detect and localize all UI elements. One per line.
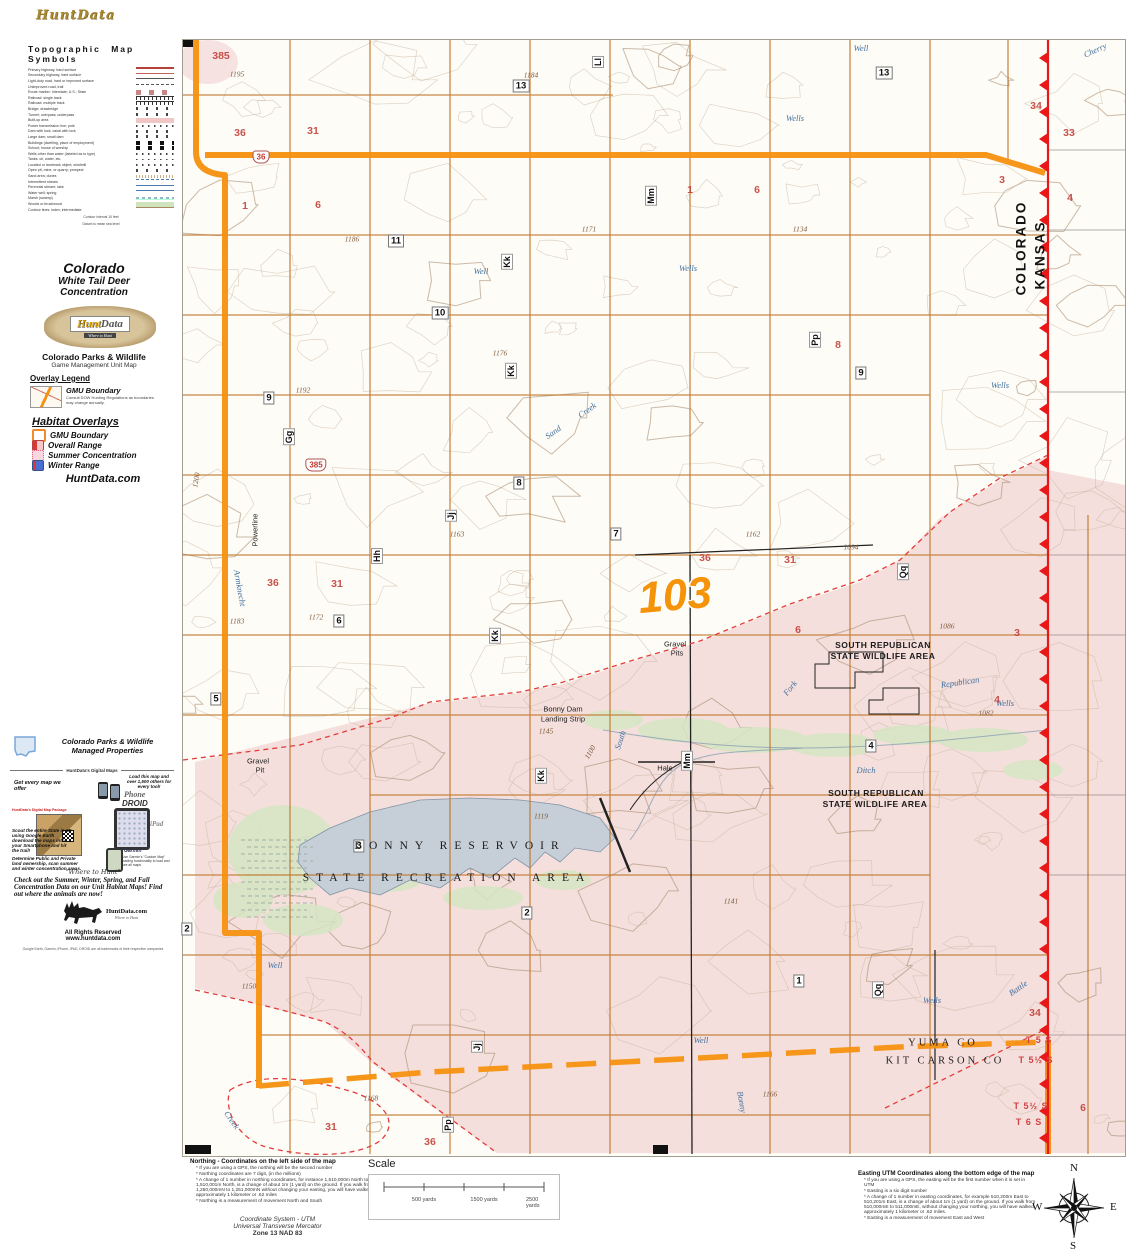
scale-bar: 500 yards 1500 yards 2500 yards	[368, 1174, 560, 1220]
topo-legend-rows: Primary highway, hard surfaceSecondary h…	[28, 67, 174, 212]
scout-pitch: Scout the entire State in 3D using Googl…	[12, 828, 72, 853]
water-label: Armknecht	[232, 569, 248, 607]
wildlife-area-label: STATE WILDLIFE AREA	[831, 651, 936, 661]
ipad-icon	[114, 808, 150, 850]
scale-tick-500: 500 yards	[412, 1197, 436, 1203]
water-label: Creek	[576, 400, 598, 420]
northing-notes: Northing - Coordinates on the left side …	[190, 1158, 382, 1205]
water-label: Fork	[781, 678, 799, 697]
elevation-label: 1171	[582, 225, 596, 234]
topo-legend-symbol	[136, 73, 174, 78]
map-title-block: Colorado White Tail Deer Concentration	[18, 260, 170, 298]
scale-title: Scale	[368, 1158, 560, 1170]
route-shield: 385	[305, 459, 326, 472]
huntdata-script-logo: HuntData	[36, 8, 115, 23]
mile-marker: 13	[513, 80, 530, 93]
section-number: 34	[1030, 100, 1042, 112]
topo-legend-label: Buildings (dwelling, place of employment…	[28, 141, 128, 145]
topo-legend-label: Railroad: single track	[28, 96, 128, 100]
digital-maps-divider: HuntData's Digital Maps	[10, 768, 174, 773]
compass-s: S	[1070, 1240, 1076, 1252]
note-bullet: * A change of 1 number in northing coord…	[196, 1178, 382, 1198]
habitat-item-label: Overall Range	[48, 441, 102, 450]
mile-marker: 8	[513, 477, 524, 490]
habitat-item-label: GMU Boundary	[50, 431, 108, 440]
topo-legend-symbol	[136, 146, 174, 150]
township-label: T 5½ S	[1018, 1055, 1053, 1065]
topo-legend-title: Topographic Map Symbols	[28, 44, 174, 64]
topo-legend-label: Dam with lock; canal with lock	[28, 129, 128, 133]
overlay-legend-item: GMU Boundary Consult DOW Hunting Regulat…	[30, 386, 172, 408]
water-label: Ditch	[857, 765, 876, 775]
county-label: YUMA CO	[908, 1038, 978, 1049]
habitat-item-label: Winter Range	[48, 461, 100, 470]
note-bullet: * Northing coordinates are 7 digit, (in …	[196, 1172, 382, 1177]
topo-legend-row: Intermittent stream	[28, 179, 174, 185]
topo-legend-row: Primary highway, hard surface	[28, 67, 174, 73]
topo-legend-symbol	[136, 113, 174, 116]
water-label: Wells	[786, 113, 804, 123]
winter-legend-icon	[32, 460, 44, 471]
topo-legend-symbol	[136, 190, 174, 195]
place-label: Pit	[256, 766, 265, 775]
topo-legend-row: Route marker: Interstate; U.S.; State	[28, 89, 174, 95]
northing-title: Northing - Coordinates on the left side …	[190, 1158, 382, 1165]
habitat-overlays-title: Habitat Overlays	[32, 416, 174, 428]
mile-marker: 9	[263, 392, 274, 405]
title-type: Concentration	[18, 287, 170, 298]
topo-legend-symbol	[136, 107, 174, 110]
habitat-item: Winter Range	[32, 460, 174, 470]
title-state: Colorado	[18, 260, 170, 276]
topo-legend-symbol	[136, 125, 174, 127]
northing-bullets: * If you are using a GPS, the northing w…	[196, 1166, 382, 1204]
note-bullet: * Easting is a six digit number	[864, 1189, 1036, 1194]
road-letter-label: Kk	[505, 363, 517, 379]
overall-legend-icon	[32, 440, 44, 451]
topo-legend-symbol	[136, 175, 174, 178]
topo-legend-symbol	[136, 130, 174, 133]
promo-paragraph: Check out the Summer, Winter, Spring, an…	[14, 877, 172, 898]
water-label: Wells	[679, 263, 697, 273]
huntdata-site-label: HuntData.com	[32, 473, 174, 485]
road-letter-label: Ll	[592, 56, 604, 68]
agency-map-type: Game Management Unit Map	[18, 362, 170, 369]
mile-marker: 4	[865, 740, 876, 753]
wildlife-area-label: SOUTH REPUBLICAN	[835, 640, 931, 650]
place-label: Powerline	[251, 514, 260, 547]
water-label: Sand	[543, 423, 563, 441]
road-letter-label: Kk	[535, 768, 547, 784]
managed-properties-title: Colorado Parks & Wildlife Managed Proper…	[43, 737, 172, 755]
topo-legend-label: Water well; spring	[28, 191, 128, 195]
section-number: 36	[267, 577, 279, 589]
trademark-note: Google Earth, Garmin, iPhone, iPAD, DROI…	[14, 947, 172, 951]
garmin-note: Use Garmin's "Custom Map" loading functi…	[122, 855, 172, 867]
road-letter-label: Mm	[645, 186, 657, 206]
logo-data-text: Data	[101, 318, 123, 330]
place-label: Gravel	[247, 757, 269, 766]
habitat-item: Overall Range	[32, 440, 174, 450]
section-number: 8	[835, 339, 841, 351]
mile-marker: 11	[388, 235, 404, 248]
logo-hunt-text: Hunt	[77, 318, 101, 330]
water-label: Well	[694, 1035, 709, 1045]
water-label: Republican	[940, 674, 980, 689]
managed-properties-block: Colorado Parks & Wildlife Managed Proper…	[12, 734, 172, 758]
topo-legend-symbol	[136, 78, 174, 83]
topo-legend-symbol	[136, 84, 174, 89]
water-label: Battle	[1007, 978, 1029, 998]
elevation-label: 1082	[979, 709, 994, 718]
gmu-boundary-note: Consult DOW Hunting Regulations as bound…	[66, 395, 161, 405]
section-number: 3	[999, 174, 1005, 186]
topo-legend-row: Unimproved road, trail	[28, 84, 174, 90]
coordinate-system-block: Coordinate System - UTM Universal Transv…	[195, 1216, 360, 1237]
section-number: 1	[242, 200, 248, 212]
topo-legend-symbol	[136, 185, 174, 190]
topo-legend-label: Railroad: multiple track	[28, 101, 128, 105]
mile-marker: 1	[793, 975, 804, 988]
topo-legend-label: Large dam; small dam	[28, 135, 128, 139]
topo-legend-row: Secondary highway, hard surface	[28, 73, 174, 79]
note-bullet: * If you are using a GPS, the easting wi…	[864, 1178, 1036, 1188]
topo-legend-row: Woods or brushwood	[28, 201, 174, 207]
topo-legend-label: Tunnel; overpass; underpass	[28, 113, 128, 117]
coordsys-line1: Coordinate System - UTM	[195, 1216, 360, 1223]
mile-marker: 9	[855, 367, 866, 380]
water-label: Well	[474, 266, 489, 276]
section-number: 31	[784, 554, 796, 566]
water-label: Cherry	[1082, 40, 1108, 59]
topo-legend-footnote1: Contour interval 10 feet	[28, 215, 174, 219]
topo-legend-label: Built-up area	[28, 118, 128, 122]
topo-legend-symbol	[136, 164, 174, 166]
topo-legend-symbol	[136, 179, 174, 184]
elevation-label: 1200	[190, 472, 201, 488]
elk-icon	[58, 899, 104, 929]
topo-legend-symbol	[136, 118, 174, 123]
wildlife-area-label: SOUTH REPUBLICAN	[828, 788, 924, 798]
road-letter-label: Qq	[897, 564, 909, 581]
elevation-label: 1163	[450, 530, 464, 539]
place-label: Gravel	[664, 640, 686, 649]
elk-logo-tagline: Where to Hunt	[106, 915, 147, 920]
where-to-hunt-script: "Where to Hunt"	[14, 868, 172, 876]
elevation-label: 1141	[724, 897, 738, 906]
topo-legend-label: Located or landmark object; windmill	[28, 163, 128, 167]
road-letter-label: Gg	[283, 429, 295, 446]
topo-legend-label: Intermittent stream	[28, 180, 128, 184]
township-label: T 5½ S	[1013, 1101, 1048, 1111]
section-number: 6	[795, 624, 801, 636]
place-label: Pits	[671, 649, 684, 658]
topo-legend-label: Marsh (swamp)	[28, 196, 128, 200]
road-letter-label: Kk	[501, 254, 513, 270]
place-label: Landing Strip	[541, 715, 585, 724]
topo-legend-symbol	[136, 90, 174, 95]
compass-n: N	[1070, 1162, 1078, 1174]
habitat-item-label: Summer Concentration	[48, 451, 136, 460]
section-number: 4	[1067, 192, 1073, 204]
mile-marker: 6	[333, 615, 344, 628]
road-letter-label: Mm	[681, 751, 693, 771]
huntdata-logo: HuntData Where to Hunt	[44, 306, 156, 348]
section-number: 3	[1014, 627, 1020, 639]
droid-label: DROID	[122, 799, 148, 808]
topo-legend-row: Water well; spring	[28, 190, 174, 196]
mile-marker: 2	[521, 907, 532, 920]
road-letter-label: Hh	[371, 548, 383, 564]
elevation-label: 1134	[793, 225, 807, 234]
topo-legend-label: Woods or brushwood	[28, 202, 128, 206]
easting-title: Easting UTM Coordinates along the bottom…	[858, 1170, 1036, 1177]
garmin-label: Garmin	[124, 848, 142, 854]
elevation-label: 1168	[364, 1094, 378, 1103]
topo-legend-label: Bridge; drawbridge	[28, 107, 128, 111]
topo-legend-row: School; house of worship	[28, 145, 174, 151]
mile-marker: 5	[210, 693, 221, 706]
section-number: 6	[754, 184, 760, 196]
topo-symbols-legend: Topographic Map Symbols Primary highway,…	[28, 44, 174, 226]
elevation-label: 1094	[844, 543, 859, 552]
scale-tick-2500: 2500 yards	[526, 1197, 548, 1209]
topo-legend-symbol	[136, 169, 174, 172]
water-label: Wells	[991, 380, 1009, 390]
habitat-item: GMU Boundary	[32, 430, 174, 440]
section-number: 34	[1029, 1007, 1041, 1019]
road-letter-label: Kk	[489, 628, 501, 644]
elevation-label: 1183	[230, 617, 244, 626]
topo-legend-label: School; house of worship	[28, 146, 128, 150]
habitat-item: Summer Concentration	[32, 450, 174, 460]
water-label: Well	[854, 43, 869, 53]
topo-legend-row: Light-duty road, hard or improved surfac…	[28, 78, 174, 84]
township-label: T 5 S	[1026, 1035, 1053, 1045]
topo-legend-symbol	[136, 67, 174, 73]
mile-marker: 13	[876, 67, 893, 80]
pitch-right: Load this map and over 1,500 others for …	[126, 774, 172, 789]
state-name-label: COLORADO	[1014, 201, 1029, 296]
area-name-label: BONNY RESERVOIR	[354, 840, 565, 852]
note-bullet: * Northing is a measurement of movement …	[196, 1199, 382, 1204]
section-number: 33	[1063, 127, 1075, 139]
compass-rose: N E S W	[1022, 1164, 1126, 1258]
note-bullet: * A change of 1 number in easting coordi…	[864, 1195, 1036, 1215]
elk-logo-site: HuntData.com	[106, 908, 147, 915]
coordsys-line3: Zone 13 NAD 83	[195, 1230, 360, 1237]
water-label: Wells	[923, 995, 941, 1005]
topo-legend-label: Tanks: oil, water, etc.	[28, 157, 128, 161]
easting-notes: Easting UTM Coordinates along the bottom…	[858, 1170, 1036, 1222]
scale-tick-1500: 1500 yards	[470, 1197, 497, 1203]
place-label: Hale	[657, 764, 672, 773]
phone-icon-2	[110, 784, 120, 801]
topo-legend-symbol	[136, 207, 174, 212]
section-number: 36	[699, 552, 711, 564]
scale-ruler	[369, 1175, 559, 1195]
topo-legend-label: Light-duty road, hard or improved surfac…	[28, 79, 128, 83]
digital-maps-promo: HuntData's Digital Maps Get every map we…	[10, 768, 174, 864]
agency-block: Colorado Parks & Wildlife Game Managemen…	[18, 352, 170, 369]
mile-marker: 10	[432, 307, 449, 320]
colorado-state-icon	[12, 734, 38, 758]
road-letter-label: Pp	[809, 332, 821, 348]
topo-legend-symbol	[136, 153, 174, 155]
topo-legend-label: Wells other than water (labeled as to ty…	[28, 152, 128, 156]
road-letter-label: Jj	[445, 510, 457, 522]
logo-tagline: Where to Hunt	[84, 333, 115, 338]
topo-legend-label: Secondary highway, hard surface	[28, 73, 128, 77]
water-label: Bonny	[735, 1090, 749, 1113]
topo-legend-row: Railroad: multiple track	[28, 101, 174, 107]
map-labels-layer: 1313111099876543221385363116163433348363…	[183, 40, 1125, 1156]
topo-legend-symbol	[136, 202, 174, 207]
topo-legend-row: Railroad: single track	[28, 95, 174, 101]
state-name-label: KANSAS	[1033, 220, 1048, 289]
mile-marker: 7	[610, 528, 621, 541]
compass-e: E	[1110, 1201, 1117, 1213]
coordsys-line2: Universal Transverse Mercator	[195, 1223, 360, 1230]
huntdata-elk-logo: HuntData.com Where to Hunt	[58, 899, 168, 929]
section-number: 1	[687, 184, 693, 196]
easting-bullets: * If you are using a GPS, the easting wi…	[864, 1178, 1036, 1221]
title-species: White Tail Deer	[18, 276, 170, 287]
elevation-label: 1186	[345, 235, 359, 244]
topo-legend-label: Open pit, mine, or quarry; prospect	[28, 168, 128, 172]
wildlife-area-label: STATE WILDLIFE AREA	[823, 799, 928, 809]
section-number: 31	[307, 125, 319, 137]
section-number: 31	[325, 1121, 337, 1133]
huntdata-gmu-map-page: { "brand":{"script_logo":"HuntData","nam…	[0, 0, 1132, 1258]
digital-maps-header: HuntData's Digital Maps	[66, 768, 117, 773]
elevation-label: 1172	[309, 613, 323, 622]
topo-legend-label: Power transmission line; pole	[28, 124, 128, 128]
rights-url: www.huntdata.com	[14, 936, 172, 942]
topo-legend-label: Unimproved road, trail	[28, 85, 128, 89]
road-letter-label: Jj	[471, 1041, 483, 1053]
topo-legend-row: Buildings (dwelling, place of employment…	[28, 140, 174, 146]
topo-legend-label: Contour lines: index; intermediate	[28, 208, 128, 212]
road-letter-label: Pp	[442, 1117, 454, 1133]
section-number: 31	[331, 578, 343, 590]
route-shield: 36	[253, 151, 270, 164]
agency-name: Colorado Parks & Wildlife	[18, 352, 170, 362]
topo-legend-symbol	[136, 159, 174, 161]
topo-legend-label: Primary highway, hard surface	[28, 68, 128, 72]
topo-legend-symbol	[136, 101, 174, 105]
place-label: Bonny Dam	[543, 705, 582, 714]
elevation-label: 1150	[242, 982, 256, 991]
ipad-label: iPad	[150, 820, 163, 828]
overlay-legend: Overlay Legend GMU Boundary Consult DOW …	[30, 374, 172, 408]
area-name-label: STATE RECREATION AREA	[303, 872, 592, 884]
topo-legend-footnote2: Datum is mean sea level	[28, 222, 174, 226]
gmu-boundary-label: GMU Boundary	[66, 386, 161, 395]
topo-legend-symbol	[136, 96, 174, 100]
water-label: Wells	[996, 698, 1014, 708]
scale-block: Scale 500 yards 1500 yards 2500 yards	[368, 1158, 560, 1220]
habitat-overlays-legend: Habitat Overlays GMU BoundaryOverall Ran…	[32, 416, 174, 485]
topo-legend-symbol	[136, 141, 174, 145]
pitch-left: Get every map we offer	[14, 780, 72, 792]
digital-package-label: HuntData's Digital Map Package	[12, 808, 96, 812]
gmu-unit-number: 103	[636, 568, 714, 624]
elevation-label: 1184	[524, 71, 538, 80]
note-bullet: * If you are using a GPS, the northing w…	[196, 1166, 382, 1171]
elevation-label: 1119	[534, 812, 548, 821]
topo-legend-symbol	[136, 135, 174, 138]
gmu-boundary-thumbnail	[30, 386, 62, 408]
summer-legend-icon	[32, 450, 44, 461]
huntdata-logo-panel: HuntData	[70, 316, 130, 332]
water-label: Well	[268, 960, 283, 970]
section-number: 36	[424, 1136, 436, 1148]
habitat-overlay-items: GMU BoundaryOverall RangeSummer Concentr…	[32, 430, 174, 470]
topo-legend-row: Contour lines: index; intermediate	[28, 207, 174, 213]
elevation-label: 1176	[493, 349, 507, 358]
section-number: 6	[1080, 1102, 1086, 1114]
elevation-label: 1086	[940, 622, 955, 631]
note-bullet: * Easting is a measurement of movement E…	[864, 1216, 1036, 1221]
elevation-label: 1100	[582, 743, 597, 760]
topographic-map: 1313111099876543221385363116163433348363…	[183, 40, 1125, 1156]
topo-legend-label: Perennial stream; lake	[28, 185, 128, 189]
township-label: T 6 S	[1016, 1117, 1043, 1127]
road-letter-label: Qq	[872, 982, 884, 999]
overlay-legend-title: Overlay Legend	[30, 374, 172, 383]
phone-label: Phone	[124, 790, 145, 799]
phone-icon	[98, 782, 108, 799]
topo-legend-row: Perennial stream; lake	[28, 184, 174, 190]
county-label: KIT CARSON CO	[886, 1056, 1005, 1067]
elevation-label: 1162	[746, 530, 760, 539]
mile-marker: 2	[181, 923, 192, 936]
topo-legend-label: Route marker: Interstate; U.S.; State	[28, 90, 128, 94]
compass-w: W	[1032, 1201, 1042, 1213]
section-number: 6	[315, 199, 321, 211]
elevation-label: 1166	[763, 1090, 777, 1099]
elevation-label: 1145	[539, 727, 553, 736]
rights-block: All Rights Reserved www.huntdata.com	[14, 930, 172, 942]
topo-legend-symbol	[136, 197, 174, 200]
topo-legend-row: Built-up area	[28, 117, 174, 123]
section-number: 36	[234, 127, 246, 139]
topo-legend-label: Sand area; dunes	[28, 174, 128, 178]
elevation-label: 1195	[230, 70, 244, 79]
elevation-label: 1192	[296, 386, 310, 395]
section-number: 385	[212, 50, 230, 62]
water-label: South	[612, 729, 627, 751]
water-label: Creek	[222, 1109, 242, 1131]
